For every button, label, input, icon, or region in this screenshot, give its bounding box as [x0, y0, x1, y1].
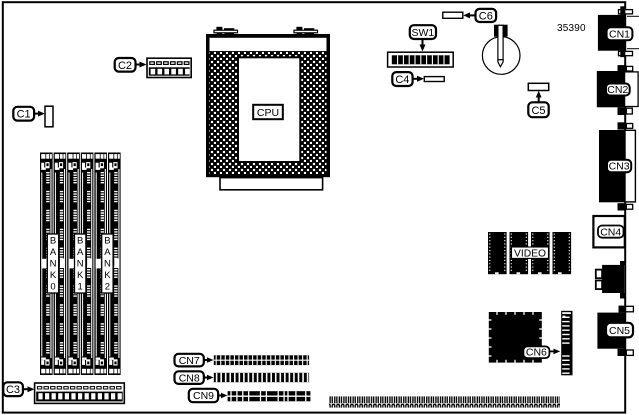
svg-text:C2: C2	[118, 60, 132, 72]
svg-text:K: K	[50, 270, 57, 281]
svg-text:K: K	[104, 270, 111, 281]
svg-text:CN7: CN7	[179, 355, 200, 367]
svg-text:CN5: CN5	[609, 325, 630, 337]
svg-text:CN8: CN8	[179, 372, 200, 384]
svg-text:0: 0	[50, 282, 55, 293]
svg-text:A: A	[77, 247, 84, 258]
svg-text:C6: C6	[479, 10, 493, 22]
svg-text:2: 2	[105, 282, 110, 293]
svg-text:1: 1	[78, 282, 83, 293]
svg-text:CN4: CN4	[600, 226, 621, 238]
svg-text:C1: C1	[17, 109, 31, 121]
svg-text:C4: C4	[395, 74, 409, 86]
svg-text:SW1: SW1	[412, 27, 435, 39]
svg-text:C3: C3	[6, 384, 20, 396]
svg-text:C5: C5	[531, 105, 545, 117]
svg-text:CN9: CN9	[193, 390, 214, 402]
svg-text:CPU: CPU	[257, 107, 279, 119]
svg-text:B: B	[50, 236, 56, 247]
svg-text:CN6: CN6	[526, 347, 547, 359]
svg-text:B: B	[104, 236, 110, 247]
svg-text:A: A	[104, 247, 111, 258]
svg-text:N: N	[50, 259, 57, 270]
svg-text:A: A	[50, 247, 57, 258]
svg-text:CN3: CN3	[609, 161, 630, 173]
svg-text:B: B	[77, 236, 83, 247]
svg-text:N: N	[104, 259, 111, 270]
svg-text:35390: 35390	[557, 23, 586, 34]
svg-text:VIDEO: VIDEO	[514, 249, 546, 260]
svg-text:CN1: CN1	[609, 29, 630, 41]
svg-text:N: N	[77, 259, 84, 270]
svg-text:CN2: CN2	[607, 84, 628, 96]
svg-text:K: K	[77, 270, 84, 281]
